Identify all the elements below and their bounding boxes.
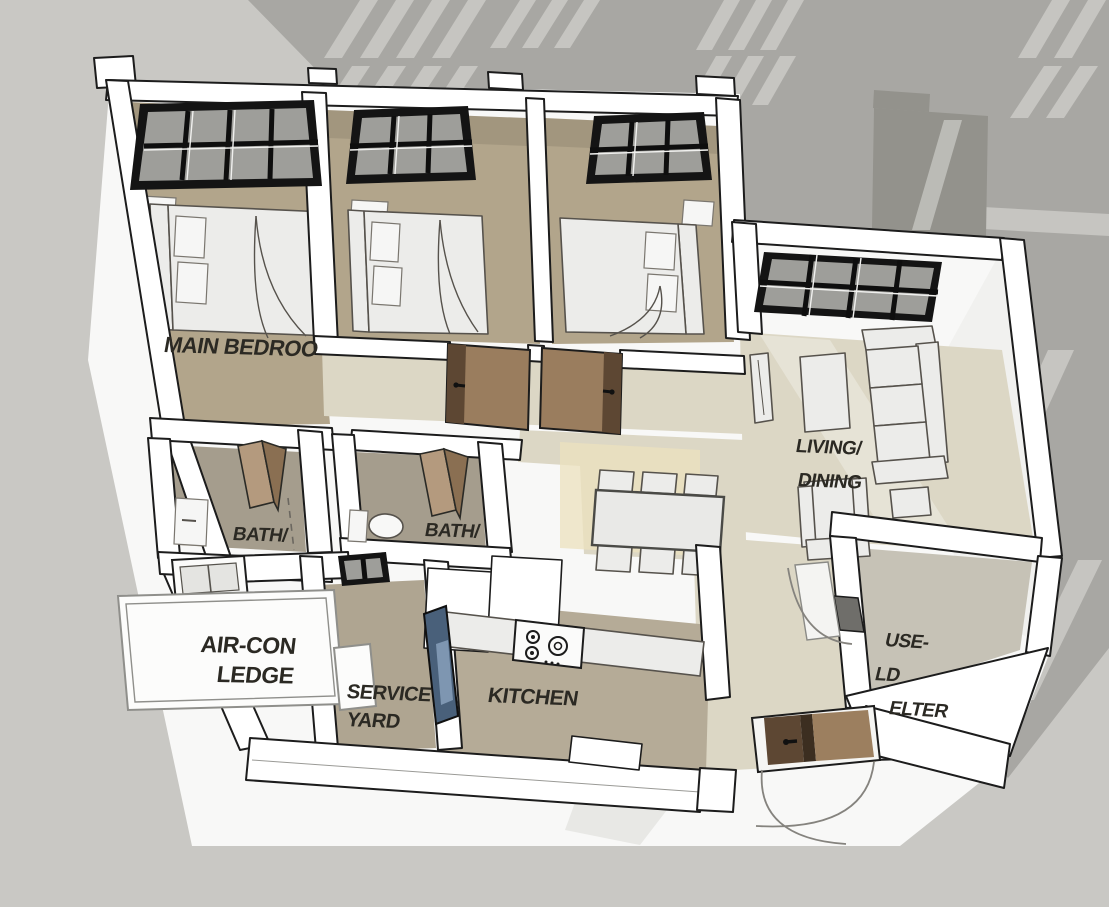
living-label-line1: LIVING/ xyxy=(794,436,864,459)
bed-icon xyxy=(348,200,488,334)
aircon-label-line1: AIR-CON xyxy=(199,631,297,659)
bed-icon xyxy=(140,196,332,338)
service-yard-top-wall xyxy=(232,552,350,582)
floor-plan-canvas: MAIN BEDROO BATH/ BATH/ LIVING/ DINING A… xyxy=(0,0,1109,907)
wall-pier xyxy=(308,68,337,84)
wall-pier xyxy=(488,72,523,90)
bath2-label: BATH/ xyxy=(423,520,482,542)
service-yard-label-line1: SERVICE xyxy=(345,681,432,706)
dining-chair-icon xyxy=(684,474,718,496)
dining-chair-icon xyxy=(639,547,675,574)
wall-pier xyxy=(696,76,735,96)
kitchen-label: KITCHEN xyxy=(486,684,579,710)
dining-chair-icon xyxy=(641,472,677,494)
window-icon xyxy=(338,552,390,586)
living-label-line2: DINING xyxy=(796,470,863,493)
entrance-pier xyxy=(697,768,736,812)
aircon-label-line2: LEDGE xyxy=(215,661,295,688)
bath1-label: BATH/ xyxy=(231,524,290,546)
dining-chair-icon xyxy=(598,470,634,492)
main-bedroom-label: MAIN BEDROO xyxy=(162,332,320,361)
coffee-table-icon xyxy=(800,353,850,432)
nightstand-icon xyxy=(682,200,714,226)
service-yard-label-line2: YARD xyxy=(345,709,401,733)
dining-chair-icon xyxy=(596,545,632,572)
door-icon xyxy=(446,344,530,430)
window-icon xyxy=(346,106,476,184)
sink-icon xyxy=(174,498,208,546)
stove-icon xyxy=(513,620,584,668)
shelter-label-line3: ELTER xyxy=(887,698,951,722)
floor-plan-render: MAIN BEDROO BATH/ BATH/ LIVING/ DINING A… xyxy=(0,0,1109,907)
window-icon xyxy=(754,252,942,322)
window-icon xyxy=(586,112,712,184)
shelter-label-line1: USE- xyxy=(883,630,931,653)
window-icon xyxy=(130,100,322,190)
living-left-wall xyxy=(732,222,762,334)
tv-console-icon xyxy=(750,353,773,423)
side-table-icon xyxy=(890,487,931,518)
door-icon xyxy=(540,348,622,434)
